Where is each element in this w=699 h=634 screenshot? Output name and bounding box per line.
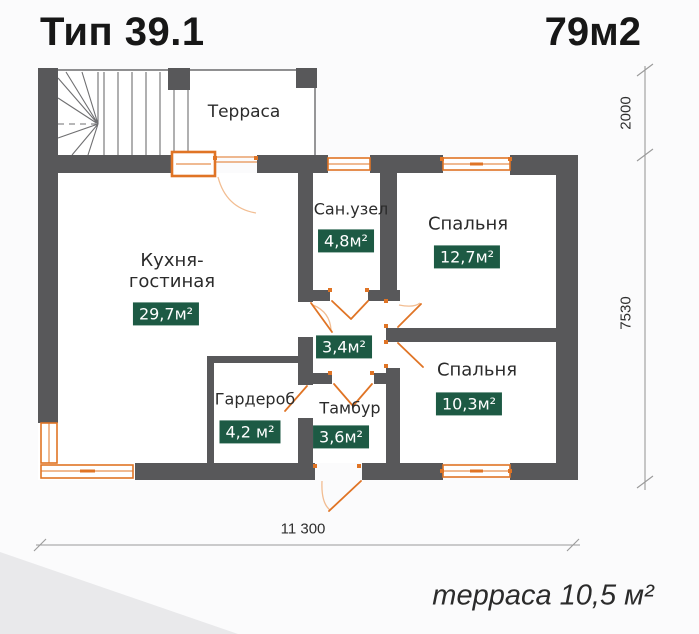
room-label-bedroom1: Спальня (428, 213, 508, 234)
room-label-bathroom: Сан.узел (314, 201, 389, 220)
floor-plan-drawing (0, 0, 699, 634)
dimension-right-top: 2000 (618, 96, 635, 129)
room-label-vestibule: Тамбур (319, 400, 380, 419)
dimension-right-main: 7530 (618, 296, 635, 329)
room-label-wardrobe: Гардероб (215, 391, 295, 410)
area-badge-kitchen: 29,7м² (133, 302, 199, 325)
room-label-bedroom2: Спальня (437, 359, 517, 380)
area-badge-bedroom2: 10,3м² (436, 392, 502, 415)
dimension-bottom: 11 300 (281, 521, 326, 538)
area-badge-bathroom: 4,8м² (318, 229, 374, 252)
room-label-kitchen: Кухня- гостиная (129, 250, 215, 292)
floor-plan-page: Тип 39.1 79м2 (0, 0, 699, 634)
area-badge-vestibule: 3,6м² (313, 425, 369, 448)
area-badge-hall: 3,4м² (316, 335, 372, 358)
area-badge-wardrobe: 4,2 м² (219, 420, 280, 443)
terrace-area-note: терраса 10,5 м² (432, 580, 653, 613)
area-badge-bedroom1: 12,7м² (434, 245, 500, 268)
room-label-terrace: Терраса (208, 102, 281, 122)
floor-fill (38, 70, 556, 480)
